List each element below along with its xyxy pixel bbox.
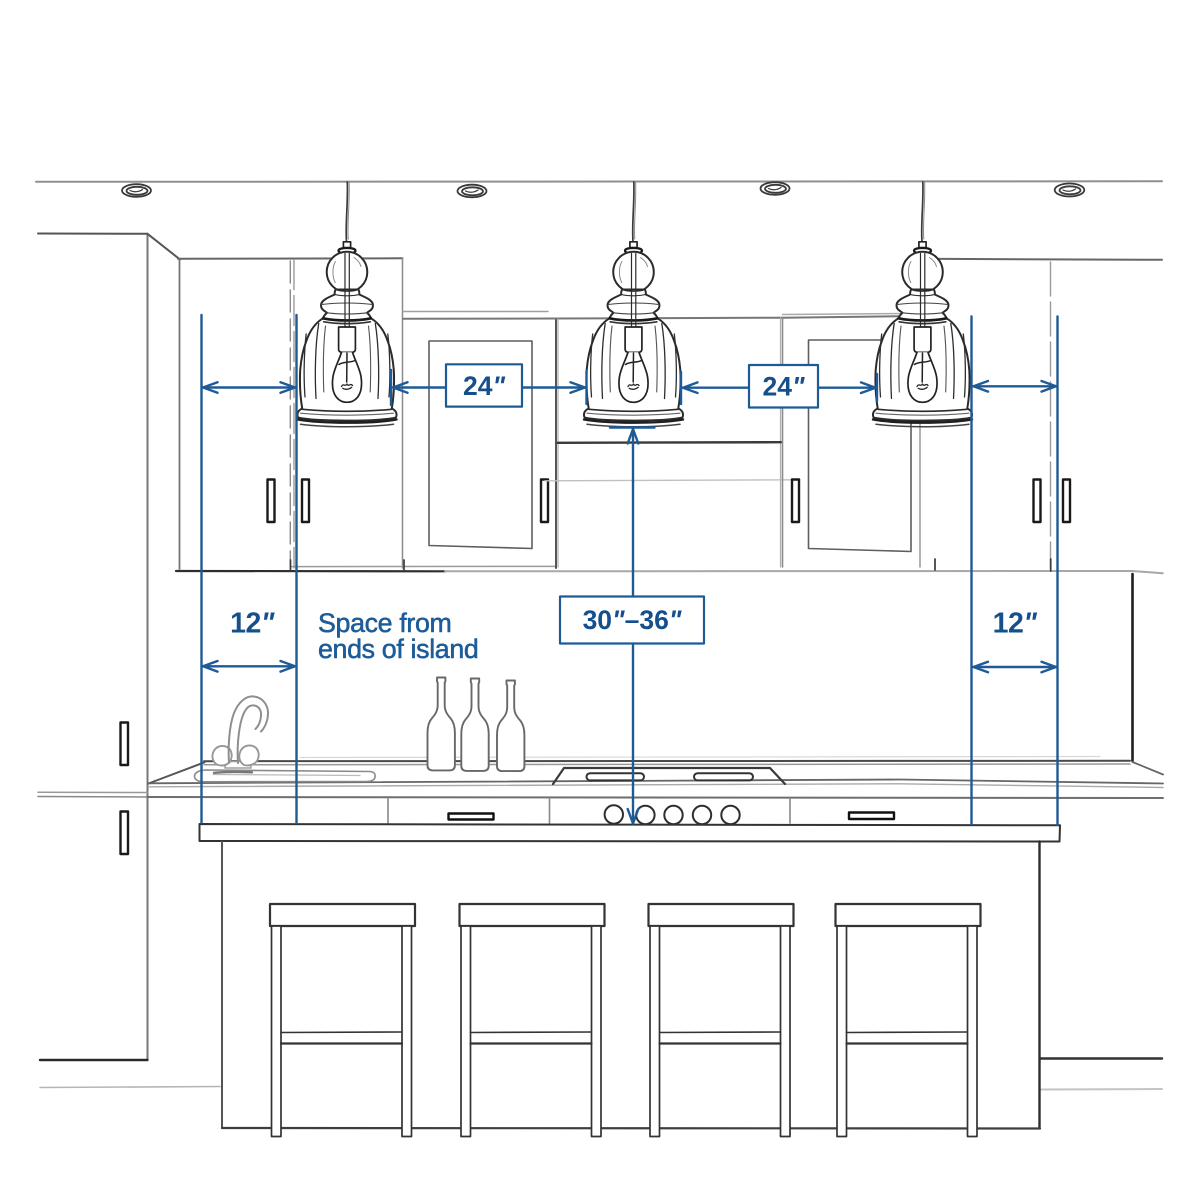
svg-text:12": 12": [993, 608, 1038, 640]
svg-text:ends of island: ends of island: [318, 634, 478, 664]
svg-text:24": 24": [463, 371, 505, 401]
svg-text:24": 24": [762, 372, 804, 402]
svg-text:30"–36": 30"–36": [583, 605, 682, 635]
svg-text:12": 12": [230, 608, 275, 640]
